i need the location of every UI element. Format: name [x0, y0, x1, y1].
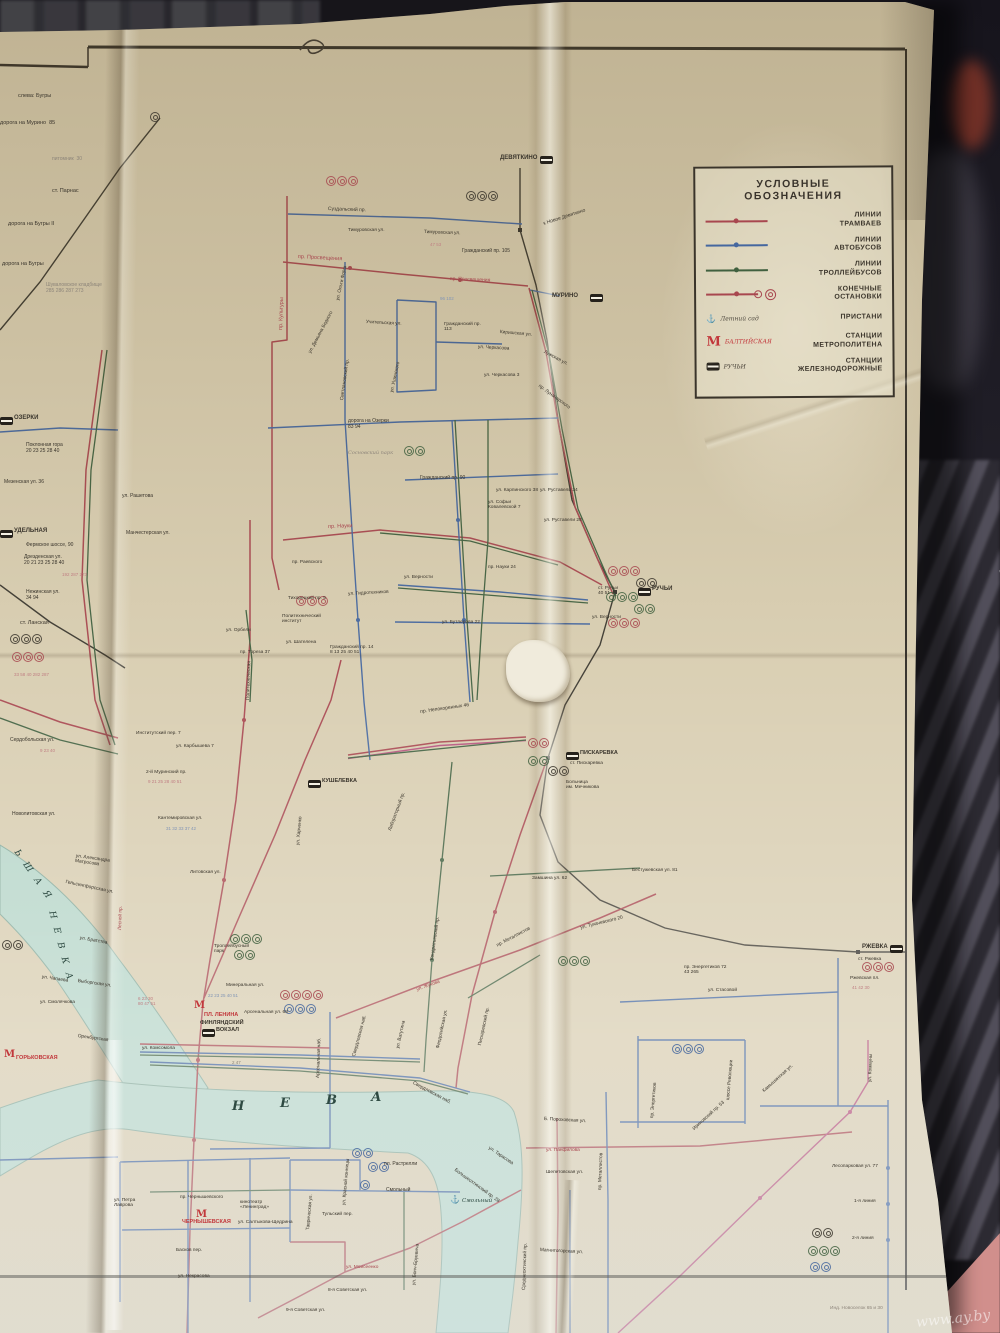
map-label-text: ст. Пискаревка: [570, 761, 603, 766]
pier-example: Летний сад: [720, 315, 759, 322]
map-label-text: Выборгская ул.: [77, 979, 111, 989]
map-label: Дрезденская ул. 20 21 23 25 28 40: [24, 555, 64, 566]
map-label: пр. Металлистов: [598, 1153, 605, 1191]
map-label: ст. Парнас: [52, 188, 79, 194]
map-label: Светлановский пр.: [340, 359, 351, 401]
map-label: ул. Черкасова 3: [484, 373, 519, 378]
map-label-text: Гражданский пр. 14 8 13 25 40 51: [330, 645, 373, 655]
map-label-text: Инд. Новоселок 65 и 30: [830, 1306, 883, 1311]
map-label-text: пр. Науки 24: [488, 565, 516, 570]
map-label-text: Гражданский пр. 105: [462, 248, 510, 254]
map-label: к Новое Девяткино: [543, 208, 586, 227]
map-label: Троллейбусный парк: [214, 944, 249, 955]
map-label-text: к Новое Девяткино: [543, 208, 587, 227]
map-label-text: ул. Руставели 34: [540, 488, 578, 493]
map-label: Выборгская ул.: [77, 979, 111, 989]
map-label-text: ул. Гидротехников: [348, 590, 389, 597]
legend-label: КОНЕЧНЫЕ ОСТАНОВКИ: [792, 285, 882, 303]
map-label: Тимуровская ул.: [348, 228, 385, 233]
rail-icon: [566, 752, 579, 760]
rail-icon: [890, 945, 903, 953]
map-label: Киришская ул.: [500, 330, 533, 338]
map-label: пр. Науки 24: [488, 565, 516, 570]
rail-icon: [0, 417, 13, 425]
map-label-text: В: [326, 1093, 337, 1108]
map-label-text: Бестужевская ул. 81: [632, 868, 678, 873]
map-label-text: Н: [232, 1099, 244, 1114]
map-label-text: Ржевская пл.: [850, 976, 880, 981]
map-label: Больница им. Мечникова: [566, 780, 599, 791]
map-label: дорога на Озерки 83 94: [348, 419, 389, 430]
map-label: ул. Тухачевского 20: [580, 915, 624, 931]
map-label-text: дорога на Озерки 83 94: [348, 418, 389, 430]
map-label-text: Мезенская ул. 36: [4, 479, 44, 485]
map-label: ул. Рашетова: [122, 494, 153, 500]
map-label-text: Троллейбусный парк: [214, 944, 249, 954]
map-label-text: Смольный: [462, 1198, 492, 1204]
map-label: ул. Смолячкова: [40, 1000, 75, 1005]
map-label: ул. Карпинского 38: [496, 488, 538, 493]
map-label-text: ул. Шателена: [286, 640, 316, 645]
map-label-text: МУРИНО: [552, 293, 578, 299]
map-label: Кантемировская ул.: [158, 816, 202, 821]
metro-icon: М: [194, 1000, 205, 1011]
map-label-text: ул. Верности: [404, 575, 433, 580]
rail-icon: [0, 530, 13, 538]
map-label-text: пр. Чернышевского: [180, 1195, 223, 1200]
map-label: 31 32 33 37 42: [166, 826, 196, 831]
map-label: Смольный: [462, 1198, 492, 1204]
map-label: ул. Ватутина: [396, 1020, 407, 1049]
map-label-text: Лесной пр.: [118, 906, 124, 930]
map-label-text: Сосновский парк: [348, 450, 393, 456]
map-label-text: Басков пер.: [176, 1248, 202, 1253]
legend-row-tram: ЛИНИИ ТРАМВАЕВ: [706, 211, 882, 230]
map-label: ул. Демьяна Бедного: [308, 311, 335, 355]
map-label: Институтский пер. 7: [136, 731, 181, 736]
metro-example: БАЛТИЙСКАЯ: [725, 338, 772, 345]
map-label: Сосновский парк: [348, 451, 393, 457]
map-label-text: Гражданский пр. 90: [420, 475, 465, 481]
map-label-text: шоссе Революции: [726, 1060, 735, 1101]
map-label: ГОРЬКОВСКАЯ: [16, 1055, 58, 1061]
metro-icon: М: [4, 1049, 15, 1060]
map-label-text: Тихорецкий пр. 5: [288, 596, 326, 601]
map-label-text: ул. Бонч-Бруевича: [412, 1244, 421, 1286]
map-label-text: ул. Ватутина: [396, 1020, 407, 1049]
map-label: ПИСКАРЕВКА: [580, 750, 618, 756]
map-label: ул. Братства: [79, 936, 108, 946]
map-label: пр. Энергетиков: [650, 1082, 658, 1118]
map-label: Н: [232, 1100, 244, 1115]
legend-row-metro: М БАЛТИЙСКАЯ СТАНЦИИ МЕТРОПОЛИТЕНА: [706, 332, 882, 351]
map-label-text: Смольный: [386, 1187, 410, 1193]
map-label-text: УДЕЛЬНАЯ: [14, 528, 47, 534]
map-label-text: ул. Красной конницы: [342, 1159, 351, 1206]
map-label-text: пр. Культуры: [278, 297, 285, 330]
map-label-text: ул. Стасовой: [708, 988, 737, 993]
map-label: пр. Науки: [328, 523, 352, 530]
map-label-text: пр. Непокоренных 46: [420, 702, 470, 715]
map-label: ул. Салтыкова-Щедрина: [238, 1220, 293, 1225]
map-label-text: Феодосийская ул.: [436, 1009, 449, 1049]
map-label-text: ул. Жукова: [416, 980, 441, 993]
map-label: Б. Пороховская ул.: [544, 1117, 587, 1125]
map-label-text: А: [371, 1090, 382, 1105]
map-label-text: ст. Ланская: [20, 620, 49, 626]
map-label: Камышинская ул.: [762, 1064, 795, 1094]
map-label: Гражданский пр. 90: [420, 476, 465, 482]
map-label: 22 23 25 40 51: [208, 993, 238, 998]
map-label: ул. Верности: [592, 615, 621, 620]
map-label-text: ул. Комсомола: [142, 1046, 175, 1051]
railway-station-icon: [707, 363, 720, 371]
map-label-text: Политехнический институт: [282, 614, 321, 624]
map-label: дорога на Бугры: [2, 261, 44, 267]
map-label: кинотеатр «Ленинград»: [240, 1200, 269, 1211]
map-label: 9-я Советская ул.: [286, 1308, 325, 1313]
rail-icon: [540, 156, 553, 164]
map-label-text: ул. Салтыкова-Щедрина: [238, 1220, 293, 1225]
map-label: ул. Комсомола: [142, 1046, 175, 1051]
map-label: слева: Бугры: [18, 93, 51, 99]
metro-icon: М: [4, 1049, 15, 1060]
map-label: МУРИНО: [552, 293, 578, 300]
map-label-text: КУШЕЛЕВКА: [322, 778, 357, 784]
map-label-text: Поклонная гора 20 23 25 28 40: [26, 442, 63, 454]
map-label-text: Больница им. Мечникова: [566, 780, 599, 790]
legend-title: УСЛОВНЫЕ ОБОЗНАЧЕНИЯ: [705, 177, 881, 202]
map-label-text: ул. Карпинского 38: [496, 488, 538, 493]
map-label: Суздальский пр.: [328, 207, 366, 214]
map-label: ул. Руставели 28: [544, 518, 582, 523]
map-label-text: ул. Некрасова: [178, 1274, 210, 1279]
map-label: Среднеохтинский пр.: [522, 1243, 529, 1290]
map-label-text: ул. Верности: [592, 615, 621, 620]
map-label-text: 8-я Советская ул.: [328, 1288, 367, 1293]
metro-icon: М: [194, 1000, 205, 1011]
map-label-text: ОЗЕРКИ: [14, 415, 38, 421]
map-label: пр. Просвещения: [450, 277, 491, 284]
map-label: Арсенальная ул. 68: [244, 1010, 288, 1015]
map-label-text: Тимуровская ул.: [424, 230, 461, 236]
map-label-text: Гражданский пр. 113: [444, 322, 481, 332]
map-label-text: пр. Просвещения: [450, 276, 491, 283]
map-label: Тульский пер.: [322, 1212, 353, 1217]
map-label-text: РУЧЬИ: [652, 586, 673, 592]
map-label: Замшина ул. 62: [532, 876, 567, 881]
map-label: ул. Бутлерова 22: [442, 620, 480, 625]
railway-example: РУЧЬИ: [724, 363, 746, 370]
map-label: Лесной пр.: [118, 906, 124, 930]
map-label: ВОКЗАЛ: [216, 1027, 239, 1033]
map-label: ул. Шателена: [286, 640, 316, 645]
map-label: Гражданский пр. 113: [444, 322, 481, 333]
map-label-text: Пискаревский пр.: [478, 1007, 491, 1046]
map-label-text: пр. Просвещения: [298, 254, 343, 262]
map-label-text: пр. Тореза 37: [240, 650, 270, 655]
map-label: ст. Ручьи 40 51: [598, 586, 618, 597]
map-label-text: ул. Моисеенко: [346, 1265, 378, 1270]
rail-icon: [0, 417, 13, 425]
map-label: Лужская ул.: [542, 350, 568, 367]
map-label-text: ул. Рашетова: [122, 493, 153, 499]
legend-row-pier: ⚓ Летний сад ПРИСТАНИ: [706, 309, 882, 326]
rail-icon: [638, 588, 651, 596]
map-label: ул. Стасовой: [708, 988, 737, 993]
map-label-text: ст. Ручьи 40 51: [598, 586, 618, 596]
map-label-text: Тимуровская ул.: [348, 228, 385, 233]
map-label: ПЛ. ЛЕНИНА: [204, 1012, 238, 1018]
map-label: Нежинская ул. 34 94: [26, 590, 60, 601]
map-label-text: РЖЕВКА: [862, 944, 888, 950]
map-label: ст. Ланская: [20, 620, 49, 626]
map-label: А: [371, 1091, 382, 1106]
map-label: пр. Просвещения: [298, 254, 343, 262]
map-label: Бестужевская ул. 81: [632, 868, 678, 873]
map-label: Ь Ш А Я: [12, 848, 55, 903]
map-label: дорога на Мурино 85: [0, 120, 55, 126]
map-label: ул. Ольги Форш: [336, 265, 349, 301]
legend-row-trolleybus: ЛИНИИ ТРОЛЛЕЙБУСОВ: [706, 260, 882, 279]
rail-icon: [540, 156, 553, 164]
map-label: Лабораторный пр.: [388, 792, 407, 832]
map-label: 6 23 30 80 47 51: [138, 996, 156, 1006]
map-label-text: Институтский пер. 7: [136, 731, 181, 736]
map-label: ул. Тарасова: [487, 1146, 514, 1167]
map-label: Пискаревский пр.: [478, 1007, 491, 1046]
map-label-text: ул. Руставели 28: [544, 518, 582, 523]
map-label-text: Лужская ул.: [543, 350, 569, 367]
map-label: Сердобольская ул.: [10, 738, 54, 744]
map-label: пр. Тореза 37: [240, 650, 270, 655]
map-label: Кондратьевский пр.: [430, 917, 441, 961]
map-label-text: 96 102: [440, 296, 454, 301]
map-label: Манчестерская ул.: [126, 531, 170, 537]
map-label-text: Н Е В К А: [46, 910, 75, 983]
map-label-text: Фермское шоссе, 90: [26, 542, 73, 548]
map-label: 9 23 40: [40, 748, 55, 753]
rail-icon: [308, 780, 321, 788]
map-label-text: ул. Демьяна Бедного: [308, 311, 334, 355]
map-label-text: пр. Раевского: [292, 560, 322, 565]
map-label: пр. Раевского: [292, 560, 322, 565]
map-label: 192 287 273: [62, 572, 87, 577]
map-label-text: ул. Панфилова: [546, 1148, 580, 1153]
map-label-text: Литовская ул.: [190, 870, 221, 875]
map-label-text: Минеральная ул.: [226, 983, 264, 988]
map-label-text: ул. Братства: [79, 936, 107, 946]
map-label-text: 192 287 273: [62, 572, 87, 577]
map-label: 33 58 40 282 287: [14, 672, 49, 677]
map-label-text: Свердловская наб.: [412, 1081, 452, 1105]
map-label-text: Среднеохтинский пр.: [522, 1243, 529, 1290]
legend-label: СТАНЦИИ ЖЕЛЕЗНОДОРОЖНЫЕ: [793, 357, 883, 375]
map-label-text: 41 42 30: [852, 985, 870, 990]
map-label-text: пр. Металлистов: [496, 926, 531, 948]
map-label-text: 9 23 40: [40, 748, 55, 753]
map-label: 41 42 30: [852, 985, 870, 990]
map-label: Гражданский пр. 14 8 13 25 40 51: [330, 645, 373, 656]
map-label-text: 22 23 25 40 51: [208, 993, 238, 998]
map-label-text: Кантемировская ул.: [158, 816, 202, 821]
map-label: 9 21 25 28 40 51: [148, 779, 182, 784]
legend-label: ЛИНИИ АВТОБУСОВ: [792, 236, 882, 254]
map-label: Инд. Новоселок 65 и 30: [830, 1306, 883, 1311]
map-label-text: пр. Энергетиков: [650, 1082, 658, 1118]
map-label-text: Политехническая: [246, 661, 252, 700]
map-label: Ириновский пр. 53: [692, 1101, 726, 1132]
anchor-icon: ⚓: [450, 1196, 460, 1205]
map-label: Е: [280, 1097, 290, 1112]
paper-map-sheet: слева: Бугрыдорога на Мурино 85питомник …: [0, 0, 1000, 1333]
map-label-text: ул. Черкасова: [478, 345, 510, 352]
map-label-text: Ириновский пр. 53: [692, 1101, 726, 1132]
map-label: пр. Непокоренных 46: [420, 703, 470, 715]
map-label: ОЗЕРКИ: [14, 415, 38, 422]
map-label-text: Новолитовская ул.: [12, 811, 55, 817]
map-label-text: ул. Ольги Форш: [336, 265, 348, 301]
map-label-text: Таврическая ул.: [306, 1194, 314, 1230]
map-label-text: кинотеатр «Ленинград»: [240, 1200, 269, 1210]
map-label-text: ФИНЛЯНДСКИЙ: [200, 1020, 244, 1026]
map-label: ул. Бонч-Бруевича: [412, 1244, 421, 1286]
map-label-text: ул. Орбели: [226, 628, 251, 633]
legend-label: СТАНЦИИ МЕТРОПОЛИТЕНА: [792, 332, 882, 350]
map-label: УДЕЛЬНАЯ: [14, 528, 47, 535]
map-label-text: ДЕВЯТКИНО: [500, 155, 537, 161]
map-label-text: 9-я Советская ул.: [286, 1308, 325, 1313]
map-label-text: Киришская ул.: [500, 330, 533, 338]
rail-icon: [202, 1029, 215, 1037]
map-label-text: Б. Пороховская ул.: [544, 1117, 587, 1124]
map-label-text: Оренбургская: [77, 1034, 108, 1043]
map-label-text: Камышинская ул.: [762, 1064, 794, 1094]
map-label: Оренбургская: [77, 1034, 108, 1044]
map-label: Минеральная ул.: [226, 983, 264, 988]
map-label-text: 47 53: [430, 242, 441, 247]
map-label-text: Гельсингфорсская ул.: [65, 880, 114, 895]
map-label-text: ул. Петра Лаврова: [114, 1198, 135, 1208]
map-label-text: 2-я линия: [852, 1236, 874, 1241]
trolleybus-line-symbol: [706, 269, 768, 271]
map-label: Поклонная гора 20 23 25 28 40: [26, 443, 63, 454]
rail-icon: [638, 588, 651, 596]
map-label-text: Дрезденская ул. 20 21 23 25 28 40: [24, 554, 64, 566]
map-label: Учительская ул.: [366, 320, 402, 327]
rail-icon: [566, 752, 579, 760]
map-label: ул. Руставели 34: [540, 488, 578, 493]
map-label: Феодосийская ул.: [436, 1009, 450, 1049]
map-label-text: ПИСКАРЕВКА: [580, 750, 618, 756]
tram-line-symbol: [706, 220, 768, 222]
legend-label: ЛИНИИ ТРОЛЛЕЙБУСОВ: [792, 260, 882, 278]
map-label: 1-я линия: [854, 1199, 876, 1204]
map-label-text: Светлановский пр.: [340, 359, 351, 401]
map-label: ул. Карбышева 7: [176, 744, 214, 749]
legend-box: УСЛОВНЫЕ ОБОЗНАЧЕНИЯ ЛИНИИ ТРАМВАЕВ ЛИНИ…: [693, 165, 895, 398]
photo-of-transit-map: слева: Бугрыдорога на Мурино 85питомник …: [0, 0, 1000, 1333]
map-label-text: ул. Коммуны: [868, 1054, 874, 1083]
map-label: ул. Моисеенко: [346, 1265, 378, 1270]
anchor-icon: ⚓: [450, 1196, 460, 1205]
map-label: Шепетовская ул.: [546, 1170, 583, 1175]
map-label: Политехнический институт: [282, 614, 321, 625]
legend-row-terminal: КОНЕЧНЫЕ ОСТАНОВКИ: [706, 285, 882, 304]
map-label: пр. Чернышевского: [180, 1195, 223, 1200]
map-label: ДЕВЯТКИНО: [500, 155, 537, 162]
map-label: 8-я Советская ул.: [328, 1288, 367, 1293]
map-label: Тихорецкий пр. 5: [288, 596, 326, 601]
legend-row-bus: ЛИНИИ АВТОБУСОВ: [706, 236, 882, 255]
map-label: ул. Панфилова: [546, 1148, 580, 1153]
map-label: дорога на Бугры II: [8, 221, 54, 227]
map-label: ул. Черкасова: [478, 345, 510, 352]
map-label-text: пр. Металлистов: [598, 1153, 604, 1190]
map-label-text: ул. Ушинского: [390, 361, 401, 393]
map-label: Свердловская наб.: [352, 1015, 368, 1058]
map-label: пр. Металлистов: [496, 926, 531, 948]
map-label-text: Суздальский пр.: [328, 206, 366, 213]
map-label-text: ПЛ. ЛЕНИНА: [204, 1012, 238, 1018]
map-label: питомник 30: [52, 157, 82, 163]
map-label-text: Нежинская ул. 34 94: [26, 589, 60, 601]
map-label: Лесопарковая ул. 77: [832, 1164, 878, 1169]
map-label: Н Е В К А: [46, 910, 75, 983]
map-label: ул. Петра Лаврова: [114, 1198, 135, 1209]
map-label-text: дорога на Бугры II: [8, 221, 54, 227]
map-label: Магнитогорская ул.: [540, 1248, 583, 1256]
map-label: КУШЕЛЕВКА: [322, 778, 357, 784]
map-label-text: пр. Луначарского: [537, 384, 571, 410]
map-label-text: Лабораторный пр.: [388, 792, 407, 832]
map-label: ул. Некрасова: [178, 1274, 210, 1279]
map-label-text: питомник 30: [52, 156, 82, 162]
map-label: Арсенальная наб.: [316, 1038, 323, 1078]
map-label-text: Арсенальная ул. 68: [244, 1010, 288, 1015]
map-label-text: Арсенальная наб.: [316, 1038, 322, 1078]
map-label-text: Свердловская наб.: [352, 1015, 368, 1057]
map-label-text: ул. Харченко: [296, 816, 303, 845]
map-label-text: Лесопарковая ул. 77: [832, 1164, 878, 1169]
map-label-text: ВОКЗАЛ: [216, 1027, 239, 1033]
map-label-text: ул. Смолячкова: [40, 1000, 75, 1005]
map-label: пр. Энергетиков 72 43 265: [684, 965, 726, 976]
map-label-text: пл. Растрелли: [384, 1161, 417, 1167]
map-label-text: 2 47: [232, 1060, 241, 1065]
map-label: 2 47: [232, 1060, 241, 1065]
map-label: Шуваловское кладбище 285 286 287 273: [46, 283, 102, 294]
legend-label: ЛИНИИ ТРАМВАЕВ: [792, 211, 882, 229]
map-label: Басков пер.: [176, 1248, 202, 1253]
metro-icon: М: [706, 335, 720, 350]
map-label-text: Замшина ул. 62: [532, 876, 567, 881]
map-label-text: ул. Тухачевского 20: [580, 915, 624, 930]
map-label: ул. Коммуны: [868, 1054, 874, 1083]
map-label: Смольный: [386, 1188, 410, 1194]
map-label: ст. Пискаревка: [570, 761, 603, 766]
map-label: 2-я линия: [852, 1236, 874, 1241]
map-label-text: ст. Ржевка: [858, 957, 881, 962]
rail-icon: [890, 945, 903, 953]
map-label: РЖЕВКА: [862, 944, 888, 951]
map-label-text: 1-я линия: [854, 1199, 876, 1204]
map-label-text: ст. Парнас: [52, 188, 79, 194]
map-label-text: Е: [280, 1096, 290, 1111]
map-label: ЧЕРНЫШЕВСКАЯ: [182, 1219, 231, 1225]
map-label: пр. Луначарского: [537, 384, 571, 411]
map-label-text: ул. Бутлерова 22: [442, 620, 480, 625]
